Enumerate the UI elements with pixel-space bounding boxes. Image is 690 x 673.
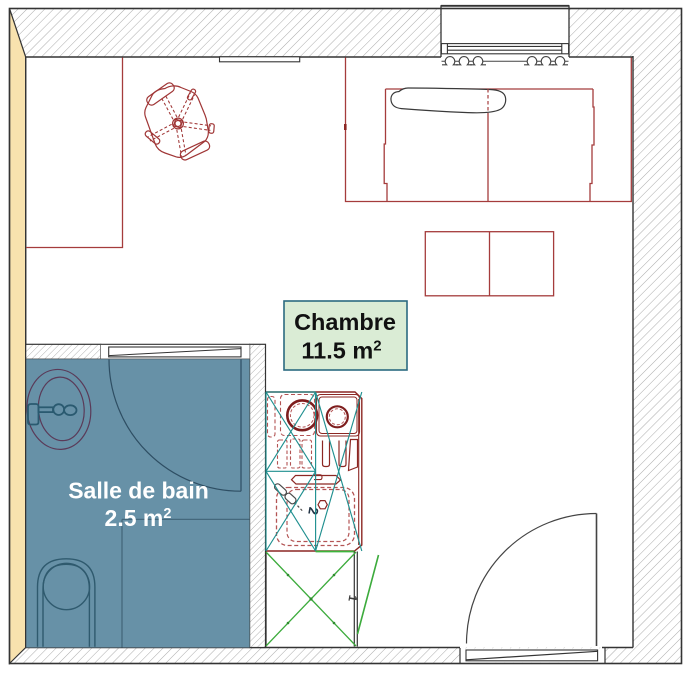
svg-text:Chambre: Chambre (294, 309, 396, 335)
svg-text:11.5 m2: 11.5 m2 (301, 338, 381, 364)
svg-text:2.5 m2: 2.5 m2 (105, 505, 172, 531)
svg-text:Salle de bain: Salle de bain (68, 478, 209, 504)
